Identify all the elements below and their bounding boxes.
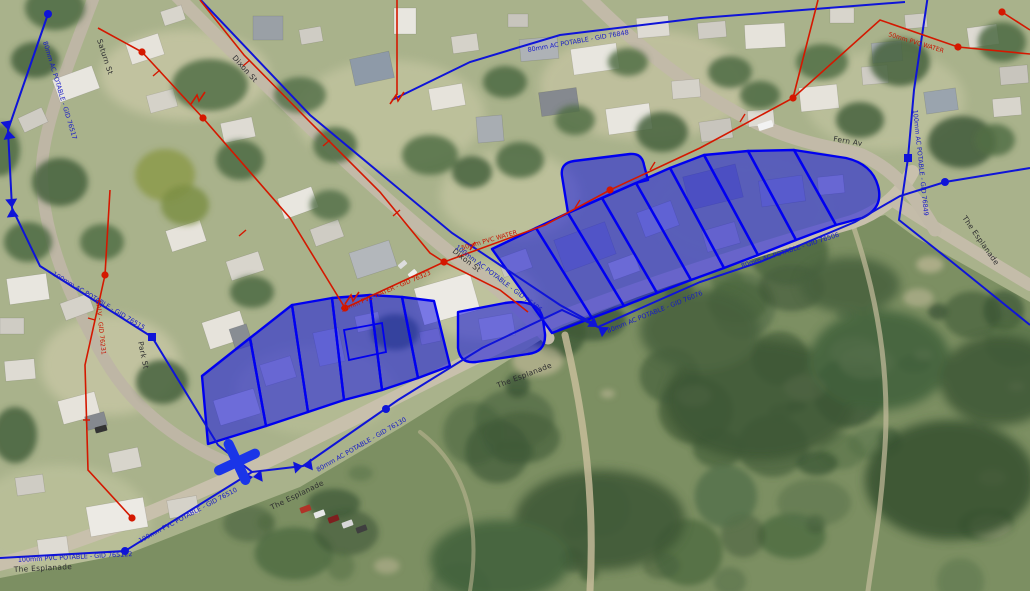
building (671, 79, 700, 99)
tree (310, 190, 350, 220)
pipe-node-marker[interactable] (382, 405, 390, 413)
tree (452, 156, 492, 188)
building (15, 474, 45, 496)
hydrant-node-marker[interactable] (128, 514, 135, 521)
tree (274, 77, 326, 113)
tree (555, 105, 595, 135)
hydrant-node-marker[interactable] (998, 8, 1005, 15)
tree (978, 22, 1026, 62)
building (744, 23, 785, 49)
building (6, 273, 49, 304)
hydrant-node-marker[interactable] (789, 94, 796, 101)
building (697, 21, 726, 39)
hydrant-node-marker[interactable] (101, 271, 108, 278)
tree (608, 48, 648, 76)
hydrant-node-marker[interactable] (199, 114, 206, 121)
tree (975, 124, 1015, 156)
tree (636, 112, 688, 152)
pipe-fitting-marker[interactable] (904, 154, 912, 162)
tree (161, 185, 209, 225)
hydrant-node-marker[interactable] (138, 48, 145, 55)
tree (496, 142, 544, 178)
selected-parcel[interactable] (458, 302, 545, 362)
building (451, 33, 479, 53)
map-canvas[interactable]: Saturn St Dixon St Dixon St Park St Fern… (0, 0, 1030, 591)
building (636, 16, 670, 39)
building (253, 16, 283, 40)
tree (172, 59, 248, 111)
building (992, 97, 1021, 117)
tree (483, 66, 527, 98)
tree (230, 276, 274, 308)
pipe-node-marker[interactable] (941, 178, 949, 186)
tree (796, 44, 848, 80)
hydrant-node-marker[interactable] (606, 186, 613, 193)
building (476, 115, 504, 143)
tree (402, 135, 458, 175)
building (0, 318, 24, 334)
tree (740, 81, 780, 109)
tree (32, 158, 88, 206)
building (830, 8, 854, 23)
building (508, 14, 528, 27)
hydrant-node-marker[interactable] (954, 43, 961, 50)
pipe-node-marker[interactable] (44, 10, 52, 18)
building (4, 359, 36, 382)
building (999, 65, 1028, 85)
pipe-fitting-marker[interactable] (148, 333, 156, 341)
tree (80, 224, 124, 260)
tree (836, 102, 884, 138)
hydrant-node-marker[interactable] (440, 258, 447, 265)
building (924, 88, 959, 114)
tree (708, 56, 752, 88)
